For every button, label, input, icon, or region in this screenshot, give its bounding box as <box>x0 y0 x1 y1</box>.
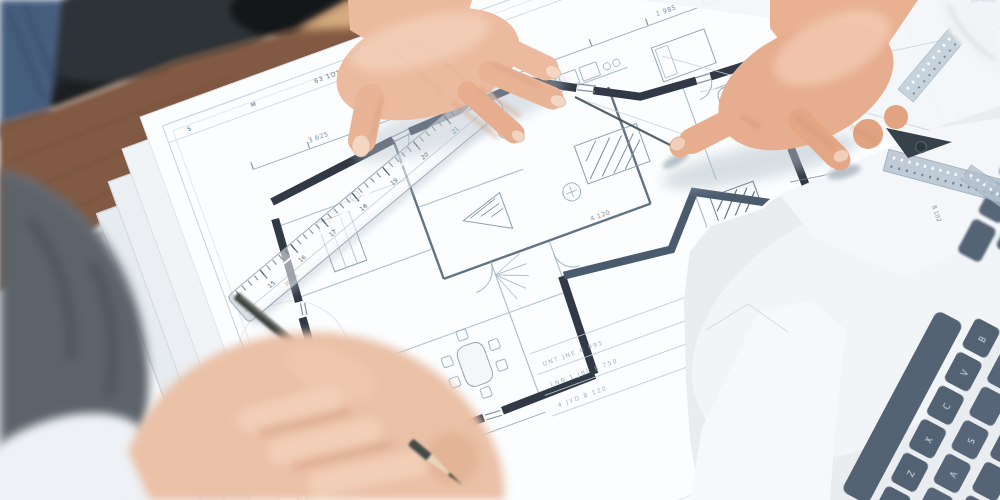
photo-grade <box>0 0 1000 500</box>
photo-canvas: S M 63 1O1 05 3 625 2 150 1 985 2 110 8 … <box>0 0 1000 500</box>
photo-architects-desk: S M 63 1O1 05 3 625 2 150 1 985 2 110 8 … <box>0 0 1000 500</box>
